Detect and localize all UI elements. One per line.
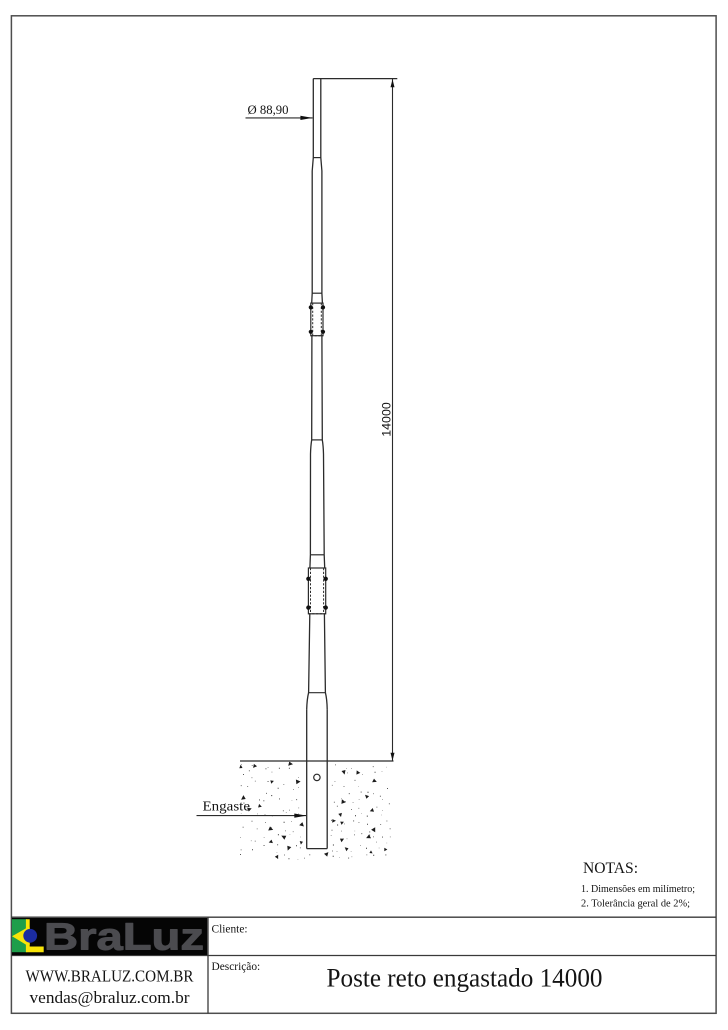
svg-text:Ø 88,90: Ø 88,90 — [248, 102, 289, 117]
svg-text:Cliente:: Cliente: — [212, 924, 248, 936]
svg-text:WWW.BRALUZ.COM.BR: WWW.BRALUZ.COM.BR — [26, 967, 195, 986]
svg-text:vendas@braluz.com.br: vendas@braluz.com.br — [30, 988, 190, 1007]
svg-text:Engaste: Engaste — [203, 799, 251, 814]
svg-text:2. Tolerância geral de 2%;: 2. Tolerância geral de 2%; — [581, 897, 690, 909]
svg-text:14000: 14000 — [379, 402, 393, 437]
svg-text:1. Dimensões em milímetro;: 1. Dimensões em milímetro; — [581, 883, 695, 895]
svg-text:BraLuz: BraLuz — [44, 917, 204, 959]
svg-text:Poste reto engastado 14000: Poste reto engastado 14000 — [327, 963, 603, 993]
svg-text:Descrição:: Descrição: — [212, 961, 261, 973]
svg-text:NOTAS:: NOTAS: — [583, 860, 638, 877]
